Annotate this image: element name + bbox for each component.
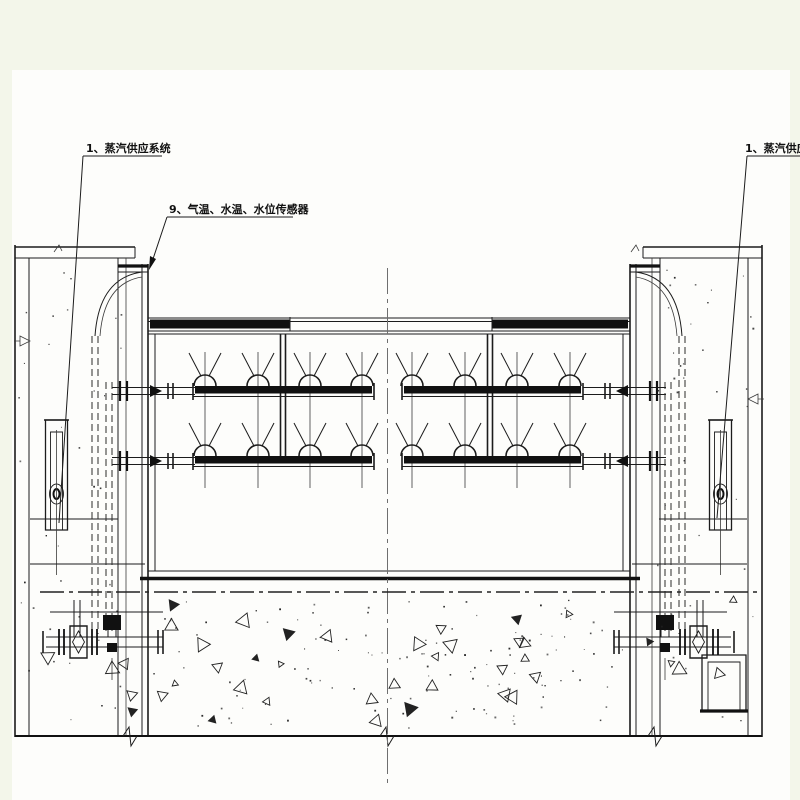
callout-sensors: 9、气温、水温、水位传感器 [169, 201, 309, 217]
concrete-stipple [18, 270, 754, 729]
tank-shell [140, 317, 640, 579]
right-wall [630, 245, 764, 737]
top-steam-pipe-right [492, 320, 628, 329]
right-equipment [614, 272, 748, 711]
left-equipment [30, 272, 163, 637]
leader-arrowhead [149, 256, 156, 270]
foundation [15, 270, 762, 746]
section-drawing [0, 0, 800, 800]
callout-steam-supply-right: 1、蒸汽供应系统 [745, 140, 800, 156]
drawing-canvas: 1、蒸汽供应系统 9、气温、水温、水位传感器 1、蒸汽供应系统 [0, 0, 800, 800]
left-drain-valve [43, 615, 163, 680]
top-steam-pipe-left [150, 320, 290, 329]
feed-pipes [281, 334, 493, 462]
callout-steam-supply-left: 1、蒸汽供应系统 [86, 140, 171, 156]
